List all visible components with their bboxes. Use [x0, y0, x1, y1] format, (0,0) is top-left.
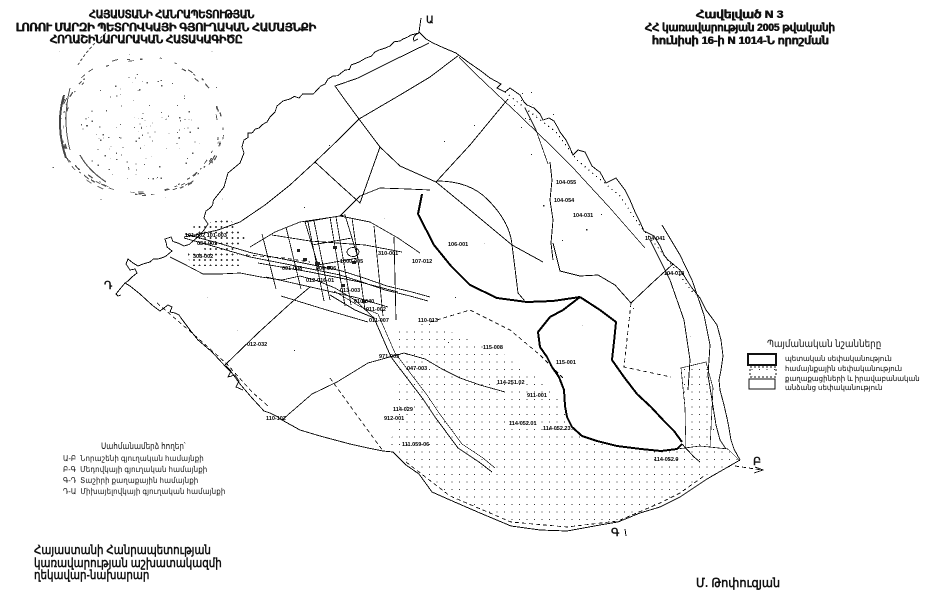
svg-text:114-052.01: 114-052.01 [509, 421, 537, 427]
svg-text:011-007: 011-007 [369, 318, 389, 324]
svg-text:104-018: 104-018 [664, 271, 684, 277]
svg-text:013-003: 013-003 [340, 288, 360, 294]
svg-text:912-001: 912-001 [384, 416, 404, 422]
svg-text:101-002 101-003: 101-002 101-003 [185, 233, 227, 239]
svg-text:114-052.0: 114-052.0 [654, 457, 678, 463]
svg-text:911-001: 911-001 [527, 393, 547, 399]
svg-text:310-001: 310-001 [378, 251, 398, 257]
svg-text:Բ: Բ [753, 456, 761, 468]
svg-text:1000-005: 1000-005 [340, 259, 363, 265]
svg-text:104-054: 104-054 [554, 198, 575, 204]
svg-text:104-055: 104-055 [556, 180, 576, 186]
svg-text:Դ: Դ [104, 280, 113, 292]
svg-text:114-052.23: 114-052.23 [543, 426, 571, 432]
svg-text:110-102: 110-102 [266, 416, 286, 422]
svg-text:110-013: 110-013 [418, 318, 438, 324]
svg-text:971-003: 971-003 [379, 354, 399, 360]
svg-text:106-001: 106-001 [448, 242, 468, 248]
svg-text:Ա: Ա [426, 15, 434, 26]
svg-text:104-041: 104-041 [645, 236, 665, 242]
svg-text:308-002: 308-002 [193, 254, 213, 260]
svg-text:001-008: 001-008 [282, 266, 302, 272]
svg-text:011-002: 011-002 [366, 307, 386, 313]
svg-text:010-040: 010-040 [354, 299, 374, 305]
svg-text:012-032: 012-032 [247, 342, 267, 348]
svg-text:115-001: 115-001 [556, 360, 576, 366]
svg-text:047-003: 047-003 [407, 366, 427, 372]
svg-text:114-029: 114-029 [393, 407, 413, 413]
svg-text:012-016-01: 012-016-01 [306, 278, 334, 284]
svg-text:104-031: 104-031 [573, 213, 593, 219]
svg-text:114-251.02: 114-251.02 [497, 380, 525, 386]
svg-text:006-006: 006-006 [316, 266, 336, 272]
svg-text:115-008: 115-008 [483, 345, 503, 351]
svg-text:034-001: 034-001 [197, 241, 217, 247]
svg-text:111.059-06: 111.059-06 [402, 442, 429, 448]
svg-text:Գ: Գ [611, 527, 620, 539]
svg-text:107-012: 107-012 [412, 259, 432, 265]
